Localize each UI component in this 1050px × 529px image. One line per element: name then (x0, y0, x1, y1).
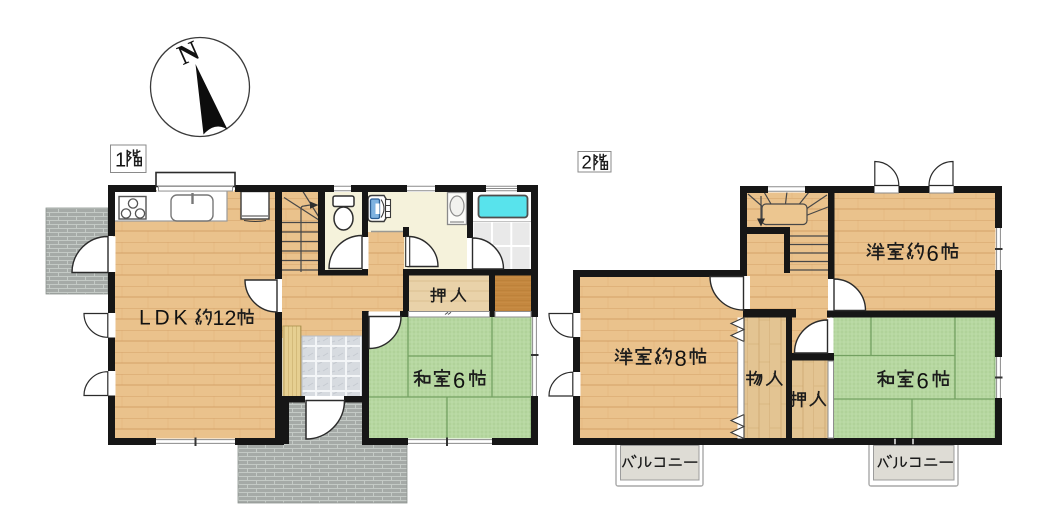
svg-text:6: 6 (917, 369, 929, 394)
svg-text:2: 2 (582, 152, 592, 173)
svg-text:6: 6 (453, 368, 465, 393)
svg-text:12: 12 (213, 306, 237, 330)
svg-text:6: 6 (927, 241, 939, 266)
svg-text:8: 8 (675, 346, 687, 371)
svg-text:1: 1 (115, 150, 126, 172)
svg-text:LDK: LDK (139, 307, 191, 330)
